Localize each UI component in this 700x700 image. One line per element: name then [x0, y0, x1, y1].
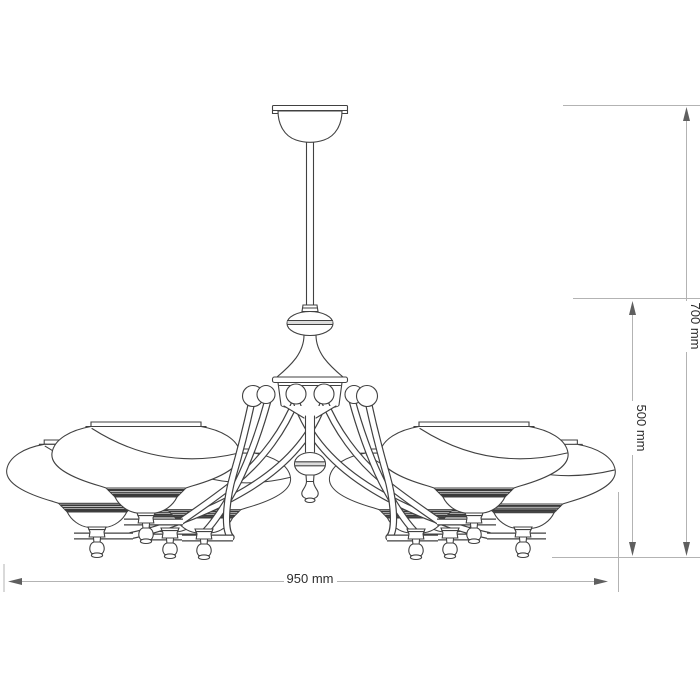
holder-finial [88, 527, 106, 558]
width-label: 950 mm [287, 571, 334, 586]
body-hub [273, 335, 348, 409]
holder-finial [514, 527, 532, 558]
dimension-body-height: 500 mm [629, 301, 649, 556]
total-height-label: 700 mm [688, 303, 700, 350]
center-column [295, 416, 326, 502]
dimension-width: 950 mm [8, 571, 608, 586]
drawing-canvas: 700 mm 500 mm 950 mm [0, 0, 700, 700]
canopy-dome [278, 111, 342, 142]
body-height-label: 500 mm [634, 405, 649, 452]
holder-finial [195, 529, 213, 560]
dimension-total-height: 700 mm [683, 107, 700, 556]
ceiling-plate [273, 106, 348, 111]
chandelier-dimension-drawing: 700 mm 500 mm 950 mm [0, 0, 700, 700]
holder-finial [407, 529, 425, 560]
ceiling-canopy [273, 106, 348, 143]
holder-finial [161, 528, 179, 559]
upper-ball [287, 312, 333, 336]
hanging-rod [302, 141, 318, 312]
holder-finial [441, 528, 459, 559]
